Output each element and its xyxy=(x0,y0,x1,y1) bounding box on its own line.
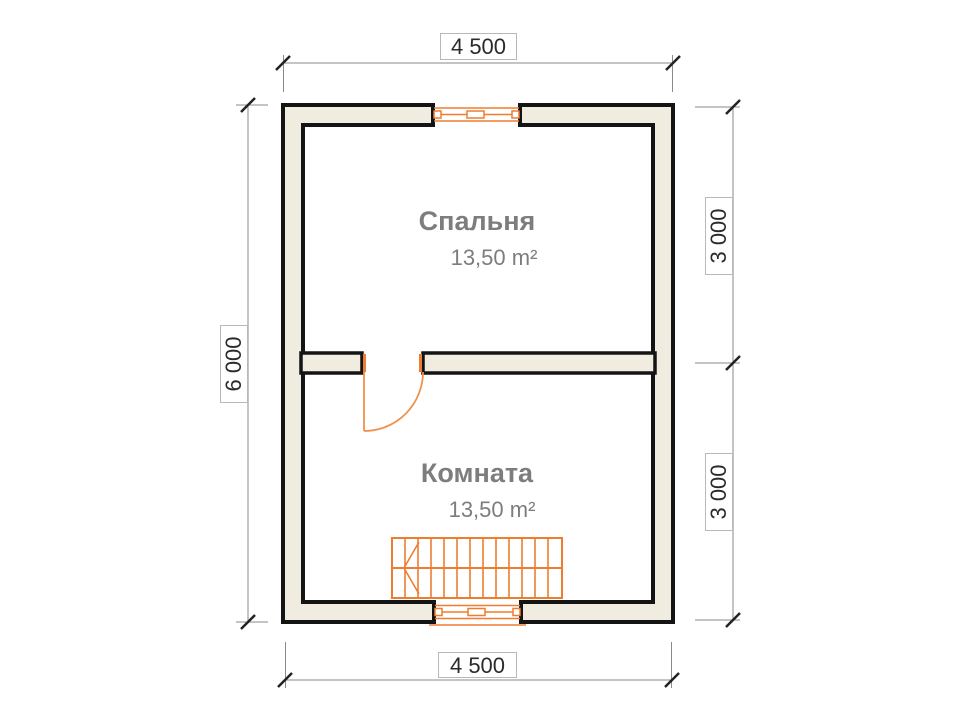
interior-wall-right-segment xyxy=(423,353,655,373)
top-window-left-mullion xyxy=(434,111,441,118)
bedroom-name: Спальня xyxy=(337,206,617,237)
bottom-window-center-mullion xyxy=(468,609,485,616)
living-room-area: 13,50 m² xyxy=(352,497,632,523)
door xyxy=(364,354,423,431)
top-window-center-mullion xyxy=(467,111,484,118)
floor-plan-canvas: 4 500 4 500 6 000 3 000 3 000 Спальня 13… xyxy=(0,0,960,720)
door-swing-arc xyxy=(364,372,423,431)
bedroom-area: 13,50 m² xyxy=(354,245,634,271)
dimension-right-upper: 3 000 xyxy=(705,197,733,275)
interior-wall-left-segment xyxy=(301,353,362,373)
floor-plan-drawing xyxy=(0,0,960,720)
bottom-window-right-mullion xyxy=(513,609,520,616)
living-room-name: Комната xyxy=(337,458,617,489)
dimension-right-lower: 3 000 xyxy=(705,453,733,531)
dimension-bottom: 4 500 xyxy=(438,652,517,678)
bottom-window-left-mullion xyxy=(435,609,442,616)
interior-wall xyxy=(301,353,655,373)
staircase xyxy=(392,538,562,598)
dimension-left: 6 000 xyxy=(220,325,248,403)
dimension-top: 4 500 xyxy=(440,33,517,60)
top-window-right-mullion xyxy=(512,111,519,118)
